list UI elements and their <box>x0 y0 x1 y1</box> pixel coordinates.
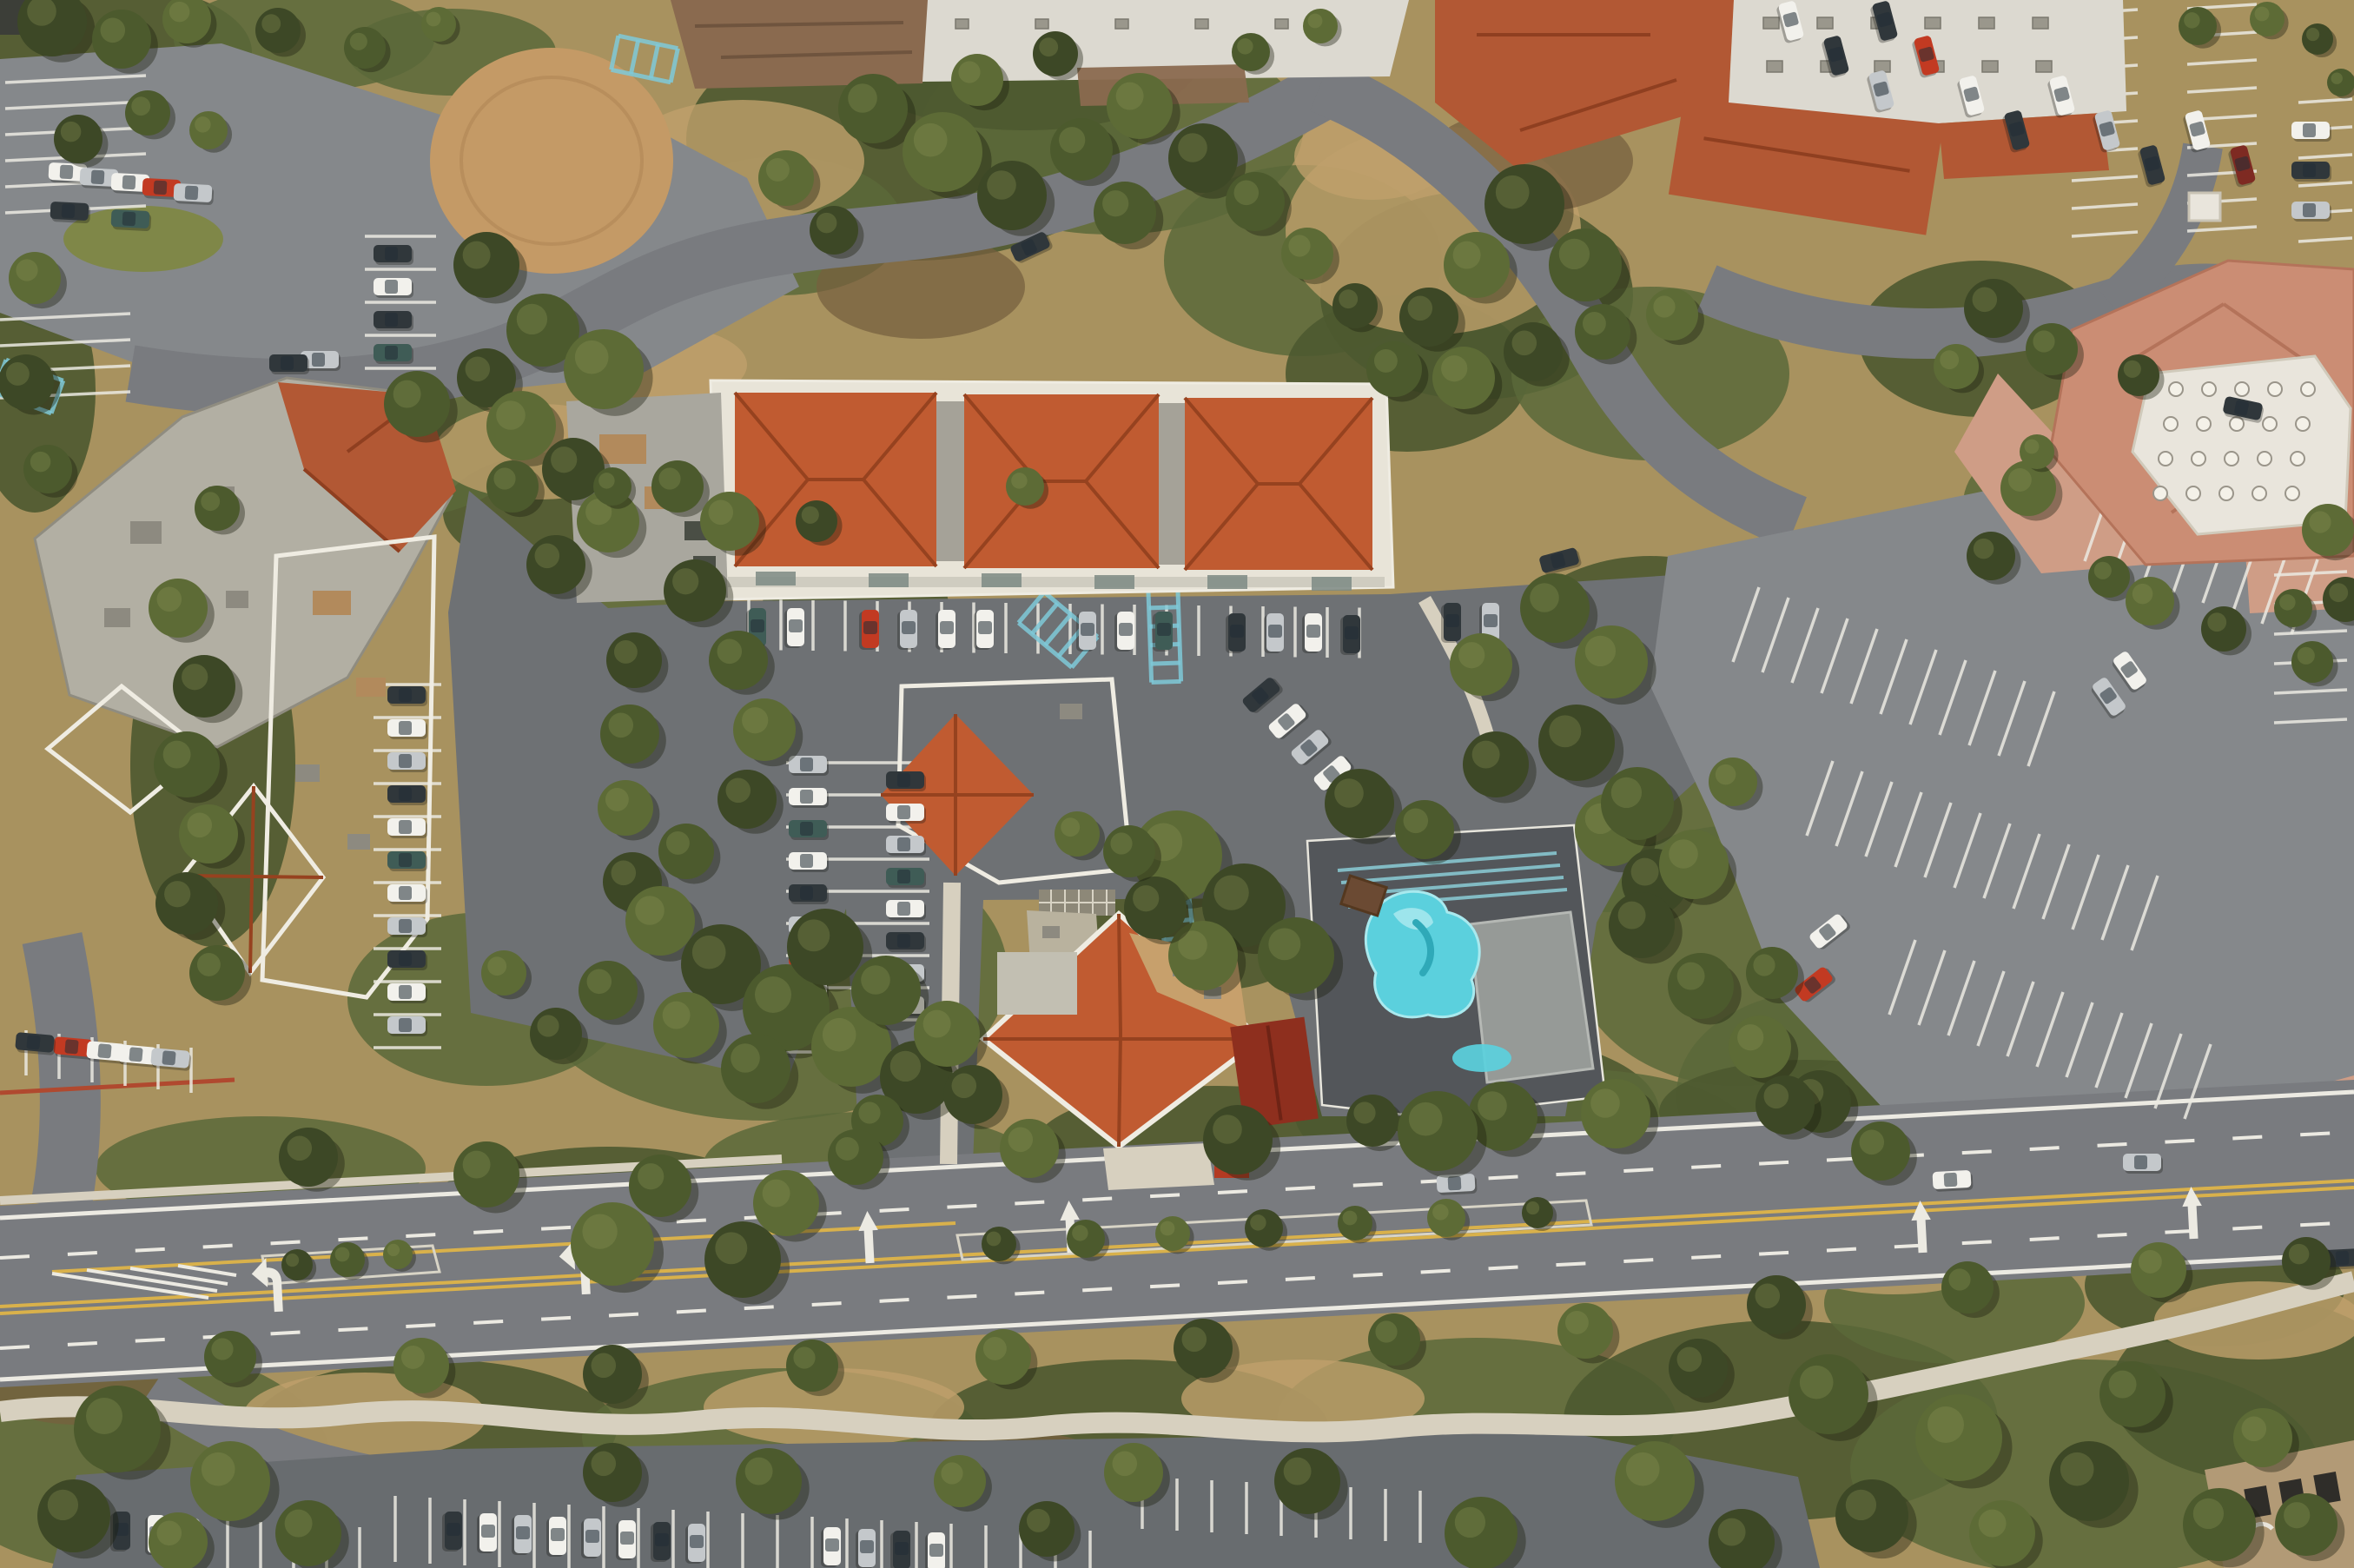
roof-vent <box>2159 452 2172 466</box>
tree-highlight <box>1718 1518 1746 1546</box>
car-windshield <box>446 1523 460 1536</box>
tree-highlight <box>2060 1452 2094 1486</box>
car-windshield <box>1268 625 1282 638</box>
brown-roof-building <box>671 0 934 89</box>
tree-highlight <box>1308 14 1323 29</box>
tree <box>758 150 814 206</box>
tree-highlight <box>2139 1250 2162 1274</box>
car-windshield <box>655 1533 669 1546</box>
parked-car <box>50 202 90 223</box>
tree <box>1941 1261 1994 1313</box>
tree <box>1232 33 1270 71</box>
parked-car <box>477 1513 497 1553</box>
tree-highlight <box>2329 583 2348 602</box>
car-windshield <box>185 186 199 201</box>
car-windshield <box>620 1532 634 1545</box>
car-windshield <box>385 313 398 327</box>
tree <box>717 770 777 829</box>
parked-car <box>1114 612 1134 652</box>
tree-highlight <box>635 896 665 925</box>
tree-highlight <box>164 881 190 907</box>
tree-highlight <box>2306 28 2319 41</box>
parked-car <box>387 686 427 706</box>
tree-highlight <box>1530 583 1559 612</box>
car-windshield <box>162 1050 175 1065</box>
parked-car <box>886 932 926 952</box>
parked-car <box>616 1520 636 1560</box>
tree <box>204 1331 256 1383</box>
tree <box>2049 1441 2129 1521</box>
tree <box>1432 347 1495 409</box>
tree-highlight <box>1027 1509 1050 1532</box>
roof-vent <box>2169 382 2183 396</box>
tree <box>281 1249 313 1280</box>
parked-car <box>150 1048 192 1071</box>
parked-car <box>886 771 926 791</box>
parked-car <box>442 1512 462 1551</box>
tree-highlight <box>1737 1024 1763 1050</box>
car-windshield <box>26 1035 40 1049</box>
parked-car <box>387 752 427 772</box>
tree <box>1504 322 1563 381</box>
tree-highlight <box>941 1462 962 1484</box>
tree-highlight <box>1512 331 1537 356</box>
tree-highlight <box>211 1338 233 1360</box>
tree-highlight <box>958 61 980 83</box>
tree <box>486 460 539 513</box>
spa-pool <box>1452 1044 1511 1072</box>
tree-highlight <box>2279 594 2295 610</box>
parked-car <box>374 344 413 364</box>
tree <box>1055 811 1100 857</box>
tree-highlight <box>1478 1091 1507 1121</box>
tree <box>154 731 220 797</box>
tree <box>526 535 585 594</box>
tree <box>125 90 170 136</box>
tree-highlight <box>517 304 547 334</box>
tree <box>1000 1119 1059 1178</box>
tree-highlight <box>612 861 637 886</box>
roof-vent <box>2252 486 2266 500</box>
aerial-photo <box>0 0 2354 1568</box>
parked-car <box>859 610 879 650</box>
car-windshield <box>897 870 910 883</box>
car-windshield <box>97 1043 111 1058</box>
tree <box>2282 1237 2331 1286</box>
tree <box>0 354 54 410</box>
awning <box>1207 575 1247 589</box>
parked-car <box>1153 612 1173 652</box>
tree-highlight <box>755 976 791 1013</box>
tree-highlight <box>1756 1284 1781 1309</box>
car-windshield <box>122 212 136 227</box>
tree-highlight <box>157 587 182 612</box>
parked-car <box>2291 202 2331 222</box>
tree <box>700 492 759 551</box>
car-windshield <box>399 754 412 768</box>
tree <box>583 1345 642 1404</box>
tree-highlight <box>169 2 190 23</box>
car-windshield <box>399 787 412 801</box>
parked-car <box>387 851 427 871</box>
tree-highlight <box>1800 1366 1834 1399</box>
car-windshield <box>2303 163 2316 177</box>
hvac-unit <box>1767 61 1782 72</box>
tree <box>453 232 519 298</box>
tree-highlight <box>195 116 210 132</box>
parked-car <box>387 950 427 970</box>
tree-highlight <box>1059 127 1085 153</box>
car-windshield <box>399 853 412 867</box>
parked-car <box>387 785 427 805</box>
parked-car <box>936 610 955 650</box>
car-windshield <box>585 1530 599 1543</box>
tree <box>481 950 526 996</box>
car-windshield <box>122 175 136 190</box>
car-windshield <box>897 773 910 787</box>
tree <box>593 467 631 506</box>
car-windshield <box>800 790 813 804</box>
tree-highlight <box>1116 83 1144 110</box>
tree <box>1669 1339 1728 1398</box>
tree <box>486 391 556 460</box>
tree <box>2099 1361 2166 1427</box>
tree-highlight <box>823 1018 856 1052</box>
parked-car <box>2291 122 2331 142</box>
tree <box>173 655 235 718</box>
tree <box>149 579 208 638</box>
tree <box>179 804 238 863</box>
parked-car <box>387 983 427 1003</box>
tree <box>1729 1016 1791 1078</box>
tree <box>1399 288 1458 347</box>
awning <box>1312 577 1352 591</box>
tree-highlight <box>914 123 948 157</box>
tree <box>384 371 450 437</box>
tree-highlight <box>2008 468 2032 492</box>
tree-highlight <box>1339 289 1358 308</box>
tree <box>190 1441 270 1521</box>
tree-highlight <box>1213 1115 1242 1144</box>
tree <box>2302 23 2333 55</box>
tree-highlight <box>709 500 734 526</box>
tree <box>753 1170 819 1236</box>
tree-highlight <box>163 741 191 769</box>
tree <box>1067 1220 1105 1258</box>
tree-highlight <box>1432 1204 1448 1220</box>
parked-car <box>789 884 829 904</box>
parked-car <box>2123 1154 2163 1174</box>
car-windshield <box>551 1528 565 1541</box>
tree-highlight <box>987 170 1016 200</box>
tree <box>1967 532 2015 580</box>
tree-highlight <box>188 813 213 838</box>
tree <box>1484 164 1564 244</box>
tree-highlight <box>387 1244 400 1256</box>
car-windshield <box>897 805 910 819</box>
roof-vent <box>2225 452 2238 466</box>
tree-highlight <box>1334 778 1364 808</box>
tree <box>2275 1493 2337 1556</box>
hvac-unit <box>295 764 320 782</box>
tree-highlight <box>2207 612 2226 632</box>
parked-car <box>512 1515 532 1555</box>
tree-highlight <box>101 18 126 43</box>
tree-highlight <box>1974 539 1994 559</box>
tree-highlight <box>1631 858 1659 886</box>
car-windshield <box>1119 623 1133 636</box>
tree-highlight <box>1626 1452 1660 1486</box>
car-windshield <box>940 621 954 634</box>
tree-highlight <box>1677 963 1705 990</box>
tree <box>564 329 644 409</box>
roof-vent <box>2268 382 2282 396</box>
car-windshield <box>863 621 877 634</box>
car-windshield <box>516 1526 530 1539</box>
tree-highlight <box>2025 440 2040 454</box>
tree <box>1346 1095 1399 1147</box>
tree-highlight <box>1948 1268 1970 1290</box>
parked-car <box>974 610 994 650</box>
tree-highlight <box>1583 312 1606 335</box>
tree <box>54 115 102 163</box>
tree-highlight <box>587 969 612 995</box>
tree-highlight <box>1653 295 1675 317</box>
tree <box>1450 633 1512 696</box>
tree <box>421 7 456 42</box>
tree <box>530 1008 582 1060</box>
hvac-unit <box>1763 17 1779 29</box>
tree-highlight <box>2309 511 2331 533</box>
tree-highlight <box>201 492 220 511</box>
tree-highlight <box>598 473 614 488</box>
parked-car <box>886 804 926 824</box>
tree-highlight <box>1973 288 1998 313</box>
tree <box>651 460 704 513</box>
car-windshield <box>1306 625 1320 638</box>
tree <box>37 1479 110 1552</box>
tree <box>2020 434 2054 469</box>
parked-car <box>789 852 829 872</box>
tree-highlight <box>592 1452 617 1477</box>
tree-highlight <box>401 1346 425 1369</box>
tree <box>1646 288 1698 341</box>
roof-vent <box>2263 417 2277 431</box>
car-windshield <box>789 619 803 632</box>
parked-car <box>886 836 926 856</box>
tree-highlight <box>487 956 506 976</box>
tree-highlight <box>715 1232 747 1264</box>
tree-highlight <box>1237 38 1253 54</box>
tree-highlight <box>466 357 491 382</box>
tree-highlight <box>1072 1225 1088 1241</box>
tree <box>393 1338 449 1393</box>
tree <box>1226 172 1285 231</box>
hvac-unit <box>1035 19 1048 29</box>
tree <box>1033 31 1078 76</box>
car-windshield <box>978 621 992 634</box>
tree <box>195 486 240 531</box>
car-windshield <box>897 837 910 851</box>
tree <box>1463 731 1529 797</box>
roof-vent <box>2153 486 2167 500</box>
tree-highlight <box>802 506 819 524</box>
roof-vent <box>2296 417 2310 431</box>
tree-highlight <box>1039 37 1058 56</box>
tree-highlight <box>731 1043 760 1073</box>
car-windshield <box>1484 614 1498 627</box>
tree-highlight <box>350 33 367 50</box>
tree <box>914 1001 980 1067</box>
tree-highlight <box>745 1458 773 1485</box>
tree-highlight <box>1860 1130 1885 1155</box>
hvac-unit <box>1275 19 1288 29</box>
tree-highlight <box>2109 1371 2137 1399</box>
tree <box>664 559 726 622</box>
tree-highlight <box>1496 175 1530 209</box>
car-windshield <box>929 1544 943 1557</box>
tree-highlight <box>692 936 726 969</box>
roof-vent <box>2235 382 2249 396</box>
tree-highlight <box>288 1136 313 1161</box>
parked-car <box>789 820 829 840</box>
tree-highlight <box>1234 181 1260 206</box>
tree-highlight <box>157 1521 182 1546</box>
tree-highlight <box>1455 1507 1485 1538</box>
roof-patch <box>356 678 386 697</box>
tree <box>1851 1121 1910 1181</box>
tree <box>1659 830 1729 899</box>
hotel-front-walk <box>728 577 1385 587</box>
tree <box>828 1129 883 1185</box>
car-windshield <box>860 1540 874 1553</box>
tree-highlight <box>923 1010 951 1038</box>
tree-highlight <box>1526 1201 1539 1214</box>
tree-highlight <box>551 447 577 473</box>
roof-vent <box>2192 452 2205 466</box>
car-windshield <box>129 1047 142 1062</box>
tree-highlight <box>1559 239 1590 269</box>
tree <box>2088 556 2130 598</box>
tree-highlight <box>1590 1088 1620 1118</box>
tree-highlight <box>2255 7 2270 22</box>
awning <box>1094 575 1134 589</box>
tree-highlight <box>797 919 830 951</box>
car-windshield <box>1445 614 1459 627</box>
car-windshield <box>800 758 813 771</box>
parked-car <box>387 1016 427 1036</box>
parked-car <box>387 719 427 739</box>
tree <box>796 500 837 542</box>
tree-highlight <box>61 122 82 142</box>
roof-vent <box>2285 486 2299 500</box>
tree-highlight <box>1453 241 1481 269</box>
tree <box>189 945 245 1001</box>
tree <box>2233 1408 2292 1467</box>
tree <box>1575 625 1648 698</box>
car-windshield <box>1230 625 1244 638</box>
tree <box>934 1455 986 1507</box>
tree <box>1915 1394 2002 1481</box>
tree <box>1019 1501 1075 1557</box>
car-windshield <box>897 934 910 948</box>
tree-highlight <box>131 96 150 116</box>
parked-car <box>387 818 427 838</box>
tree-highlight <box>2124 361 2141 378</box>
tree-highlight <box>2298 647 2315 665</box>
car-windshield <box>897 902 910 916</box>
tree-highlight <box>1565 1311 1589 1334</box>
car-windshield <box>385 346 398 360</box>
tree <box>2302 504 2354 556</box>
tree-highlight <box>182 664 208 690</box>
tree-highlight <box>1182 1327 1207 1353</box>
tree <box>704 1221 781 1298</box>
tree <box>2179 7 2217 45</box>
parked-car <box>1441 603 1461 643</box>
tree <box>275 1500 341 1566</box>
tree <box>189 111 228 149</box>
tree-highlight <box>48 1490 78 1520</box>
entry-walk <box>1103 1143 1214 1190</box>
parked-car <box>856 1529 876 1568</box>
utility-pad <box>2189 193 2220 221</box>
tree <box>606 632 662 688</box>
tree-highlight <box>987 1232 1002 1247</box>
tree <box>1964 279 2023 338</box>
car-windshield <box>690 1535 704 1548</box>
tree-highlight <box>1113 1452 1138 1477</box>
tree-highlight <box>1404 809 1429 834</box>
tree <box>1709 758 1757 806</box>
parked-car <box>269 354 309 374</box>
tree-highlight <box>393 380 421 408</box>
tree <box>810 206 858 255</box>
tree <box>1274 1448 1340 1514</box>
tree-highlight <box>742 707 768 733</box>
tree-highlight <box>463 241 491 269</box>
roof-vent <box>2197 417 2211 431</box>
tree <box>255 8 301 53</box>
tree <box>1366 341 1422 397</box>
car-windshield <box>2336 1251 2350 1266</box>
tree-highlight <box>2184 12 2199 28</box>
tree-highlight <box>890 1051 921 1082</box>
tree-highlight <box>1753 954 1775 976</box>
tree-highlight <box>1716 764 1736 785</box>
tree-highlight <box>582 1214 617 1248</box>
tree <box>1245 1209 1283 1247</box>
parked-car <box>890 1531 910 1568</box>
tree <box>951 54 1003 106</box>
tree-highlight <box>1408 296 1433 321</box>
tree <box>330 1242 365 1277</box>
car-windshield <box>385 247 398 261</box>
tree <box>943 1065 1002 1124</box>
hvac-unit <box>1979 17 1994 29</box>
tree-highlight <box>666 831 690 855</box>
tree <box>583 1443 642 1502</box>
tree <box>1789 1354 1868 1434</box>
tree <box>1368 1313 1420 1366</box>
car-windshield <box>399 886 412 900</box>
tree <box>344 27 386 69</box>
parked-car <box>789 756 829 776</box>
car-windshield <box>399 1018 412 1032</box>
parked-car <box>789 788 829 808</box>
tree <box>709 631 768 690</box>
tree-highlight <box>1409 1102 1443 1136</box>
